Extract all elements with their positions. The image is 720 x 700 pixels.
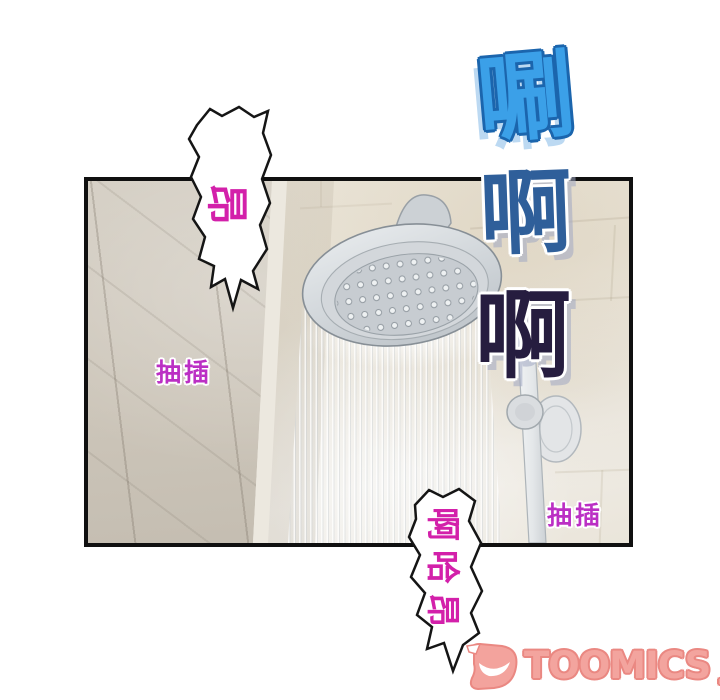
sfx-ah-top: 啊 [478,166,573,261]
toomics-domain-suffix: .com [716,660,720,691]
sfx-thrust-right: 抽插 [547,503,603,528]
speech-bubble-top: 昂 [181,101,281,313]
sfx-ah-bottom: 啊 [475,288,571,384]
toomics-logo-icon [464,636,520,694]
toomics-watermark: TOOMICS .com [464,636,720,694]
sfx-shua: 唰 [474,46,578,150]
rail-knob [507,395,543,429]
comic-page: 唰 啊 啊 抽插 抽插 昂 啊 哈 昂 TOOMICS .com [0,0,720,700]
moan-text-top: 昂 [205,183,247,225]
moan-text-column: 啊 哈 昂 [425,507,459,627]
toomics-brand-text: TOOMICS [524,644,710,687]
sfx-thrust-left: 抽插 [156,360,212,385]
moan-char-1: 啊 [425,507,459,541]
moan-char-2: 哈 [425,550,459,584]
moan-char-3: 昂 [425,593,459,627]
